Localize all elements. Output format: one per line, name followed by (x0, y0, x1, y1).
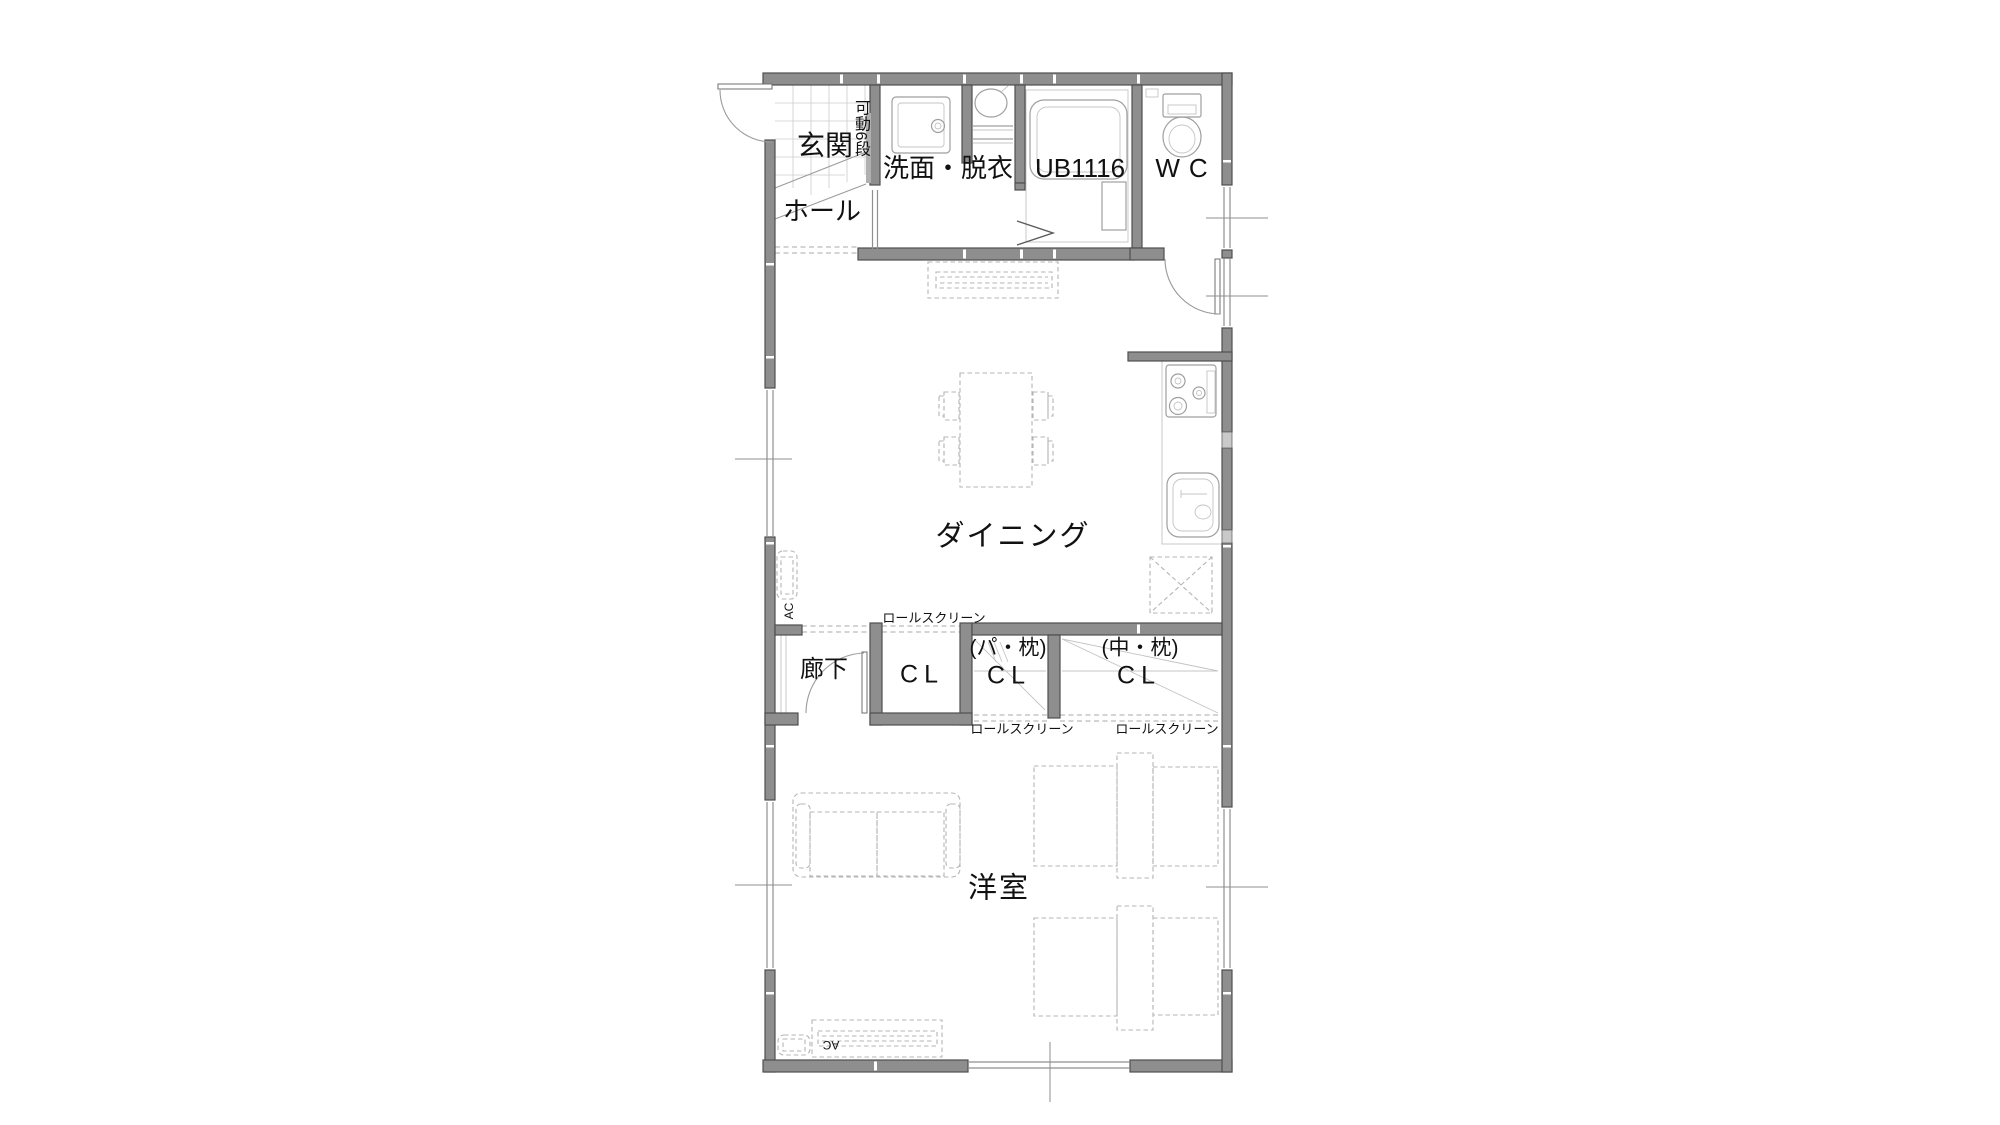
washing-machine-pan (892, 97, 950, 153)
room-label-closet2: CL (987, 664, 1031, 689)
toilet (1146, 89, 1201, 157)
washroom-sliding-door (873, 190, 878, 250)
room-label-corridor: 廊下 (800, 658, 848, 682)
wc-door (1165, 259, 1220, 314)
window (1224, 258, 1230, 326)
window (968, 1062, 1130, 1068)
annotation-roll-screen-top: ロールスクリーン (882, 612, 985, 625)
sofa (793, 793, 960, 877)
gas-stove (1166, 365, 1216, 417)
small-window (1222, 432, 1232, 448)
room-label-closet1: CL (900, 663, 944, 688)
closet3-note: (中・枕) (1102, 638, 1179, 659)
annotation-roll-screen-bottom-right: ロールスクリーン (1115, 723, 1218, 736)
window (1224, 809, 1230, 968)
bed-2 (1034, 906, 1218, 1030)
room-label-bedroom: 洋室 (968, 875, 1030, 904)
bed-1 (1034, 753, 1218, 878)
annotation-movable-shelf: 可動6段 (852, 100, 868, 157)
annotation-ac-side: AC (783, 603, 795, 620)
window (767, 390, 773, 537)
room-label-washroom: 洗面・脱衣 (883, 155, 1013, 181)
closet2-note: (パ・枕) (970, 638, 1047, 659)
room-label-genkan: 玄関 (797, 132, 853, 160)
bath-folding-door (1017, 221, 1053, 245)
air-conditioner-side (777, 551, 797, 599)
air-conditioner-bottom (778, 1035, 810, 1055)
annotation-ac-bottom: AC (823, 1039, 840, 1051)
room-label-wc: WC (1155, 155, 1216, 181)
room-label-bath: UB1116 (1035, 155, 1125, 181)
washbasin (973, 86, 1013, 143)
kitchen-sink (1167, 473, 1219, 537)
room-label-hall: ホール (783, 198, 861, 224)
front-door (718, 84, 772, 142)
room-label-closet3: CL (1117, 664, 1161, 689)
refrigerator (1150, 557, 1212, 613)
cabinet (928, 262, 1058, 298)
floor-plan-page: 玄関 可動6段 ホール 洗面・脱衣 UB1116 WC ダイニング 廊下 CL … (0, 0, 2000, 1125)
small-window (1222, 530, 1232, 543)
annotation-roll-screen-bottom-left: ロールスクリーン (970, 723, 1073, 736)
room-label-dining: ダイニング (935, 523, 1090, 552)
dining-table-set (939, 373, 1053, 487)
